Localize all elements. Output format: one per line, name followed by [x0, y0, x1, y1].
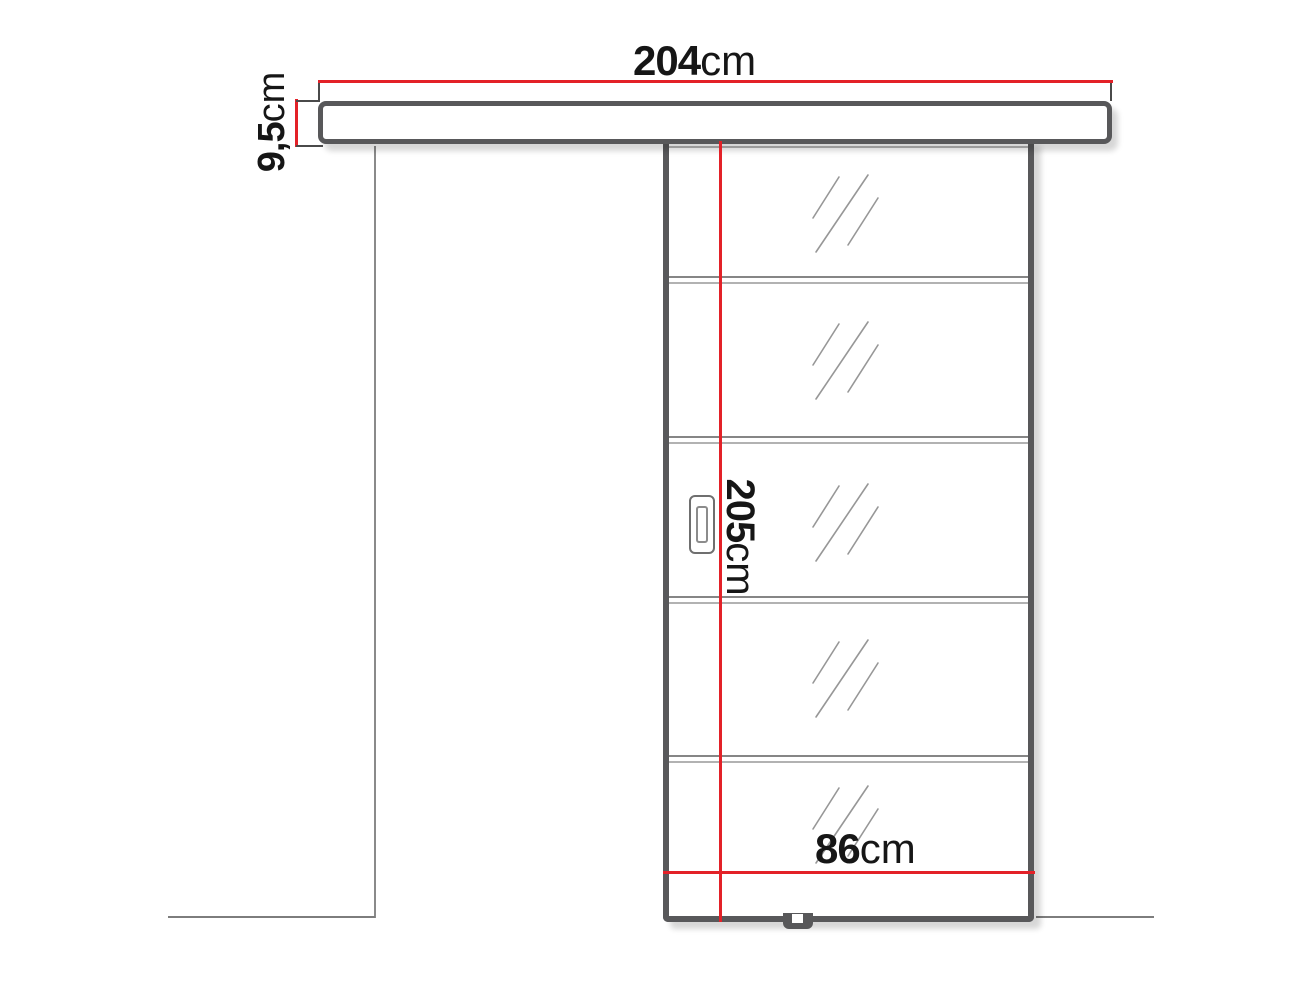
rail-width-value: 204	[633, 37, 700, 84]
panel-divider	[669, 276, 1028, 284]
floor-guide-roller	[792, 914, 803, 923]
dimension-tick	[296, 145, 323, 147]
glass-hatch-icon	[806, 479, 886, 569]
rail-height-value: 9,5	[251, 122, 293, 172]
door-width-value: 86	[815, 825, 860, 872]
panel-divider	[669, 755, 1028, 763]
glass-hatch-icon	[806, 317, 886, 407]
dimension-diagram: 204cm 9,5cm 205cm 86cm	[0, 0, 1312, 984]
dimension-tick	[318, 83, 320, 101]
door-height-label: 205cm	[714, 452, 760, 622]
door-width-label: 86cm	[815, 828, 916, 870]
rail-width-label: 204cm	[633, 40, 756, 82]
floor-line-left	[168, 916, 375, 918]
glass-hatch-icon	[806, 635, 886, 725]
glass-hatch-icon	[806, 170, 886, 260]
door-handle-recess	[696, 506, 708, 543]
dimension-tick	[1110, 83, 1112, 101]
wall-line	[374, 146, 376, 918]
rail-shadow-line	[669, 146, 1028, 148]
door-height-unit: cm	[718, 542, 762, 595]
door-handle	[689, 495, 715, 554]
door-height-value: 205	[718, 478, 762, 542]
floor-guide	[783, 913, 813, 929]
floor-line-right	[1036, 916, 1154, 918]
rail-width-unit: cm	[700, 37, 756, 84]
panel-divider	[669, 436, 1028, 444]
door-width-unit: cm	[860, 825, 916, 872]
rail-height-unit: cm	[251, 72, 293, 123]
dimension-tick	[296, 100, 320, 102]
top-rail	[318, 101, 1112, 144]
rail-height-label: 9,5cm	[253, 42, 297, 202]
